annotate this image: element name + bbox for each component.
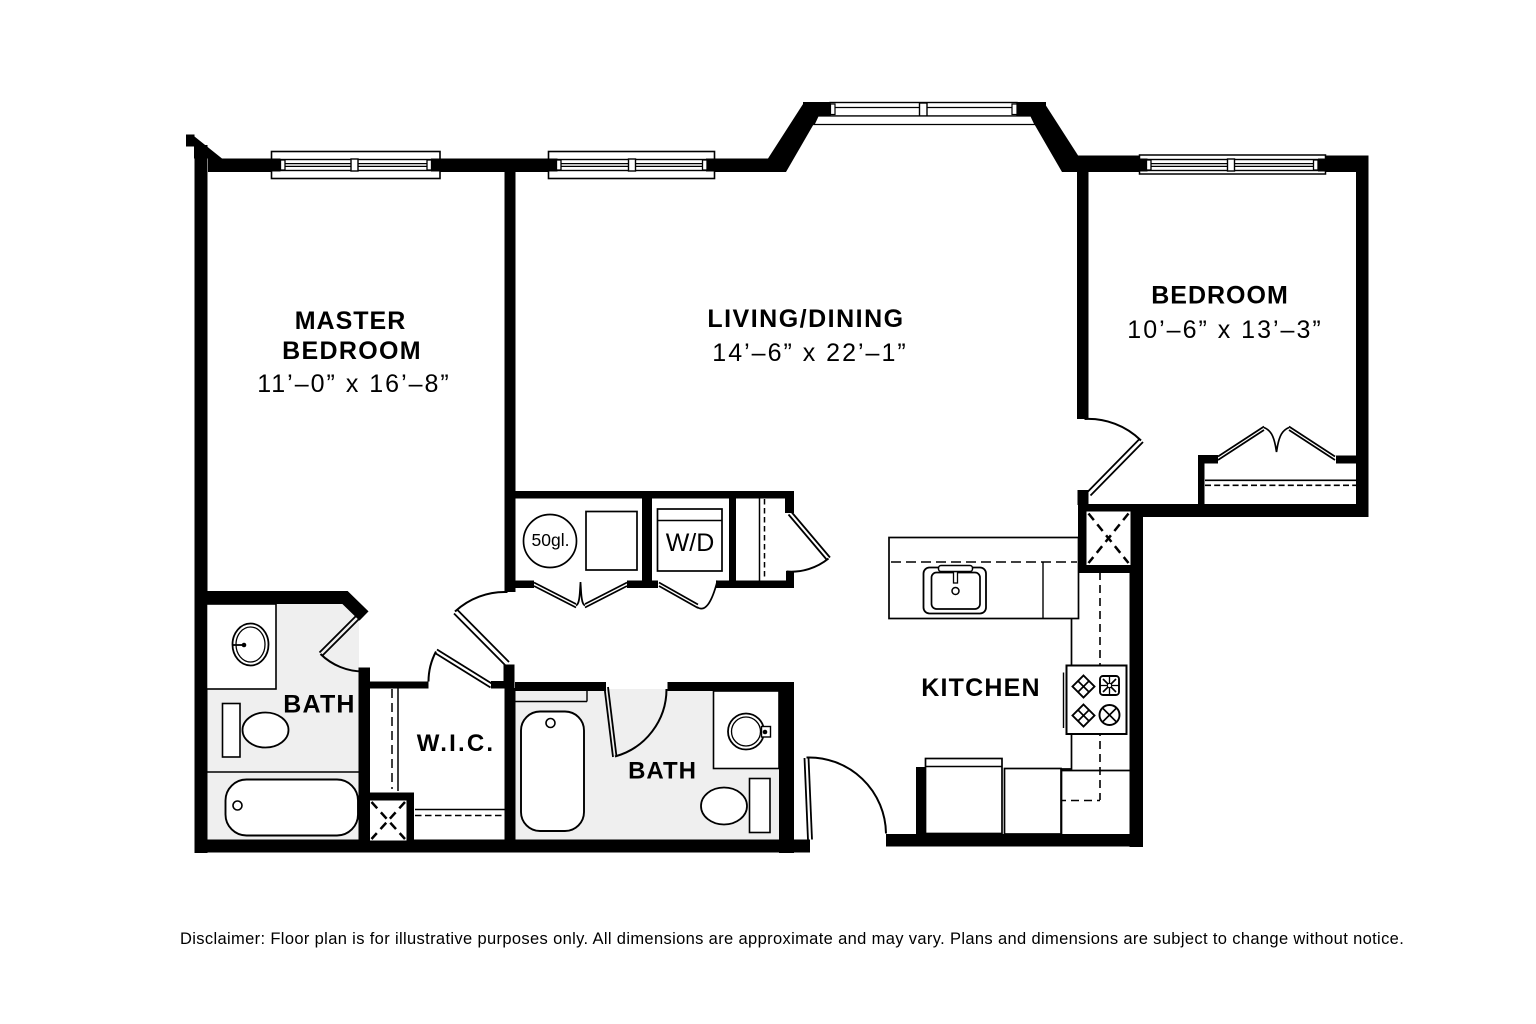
svg-text:LIVING/DINING: LIVING/DINING xyxy=(707,305,904,333)
svg-text:14’–6” x 22’–1”: 14’–6” x 22’–1” xyxy=(712,339,907,367)
svg-text:BATH: BATH xyxy=(628,758,697,785)
svg-text:10’–6” x 13’–3”: 10’–6” x 13’–3” xyxy=(1127,316,1322,344)
svg-text:W/D: W/D xyxy=(666,529,715,557)
svg-text:W.I.C.: W.I.C. xyxy=(417,730,496,757)
svg-text:MASTER: MASTER xyxy=(295,307,407,335)
svg-text:KITCHEN: KITCHEN xyxy=(921,674,1041,702)
svg-text:11’–0” x 16’–8”: 11’–0” x 16’–8” xyxy=(257,370,451,398)
svg-text:BEDROOM: BEDROOM xyxy=(282,337,422,365)
svg-text:Disclaimer: Floor plan is for: Disclaimer: Floor plan is for illustrati… xyxy=(180,930,1404,948)
svg-text:BATH: BATH xyxy=(283,691,355,719)
svg-text:50gl.: 50gl. xyxy=(532,530,570,550)
svg-text:BEDROOM: BEDROOM xyxy=(1151,282,1289,310)
